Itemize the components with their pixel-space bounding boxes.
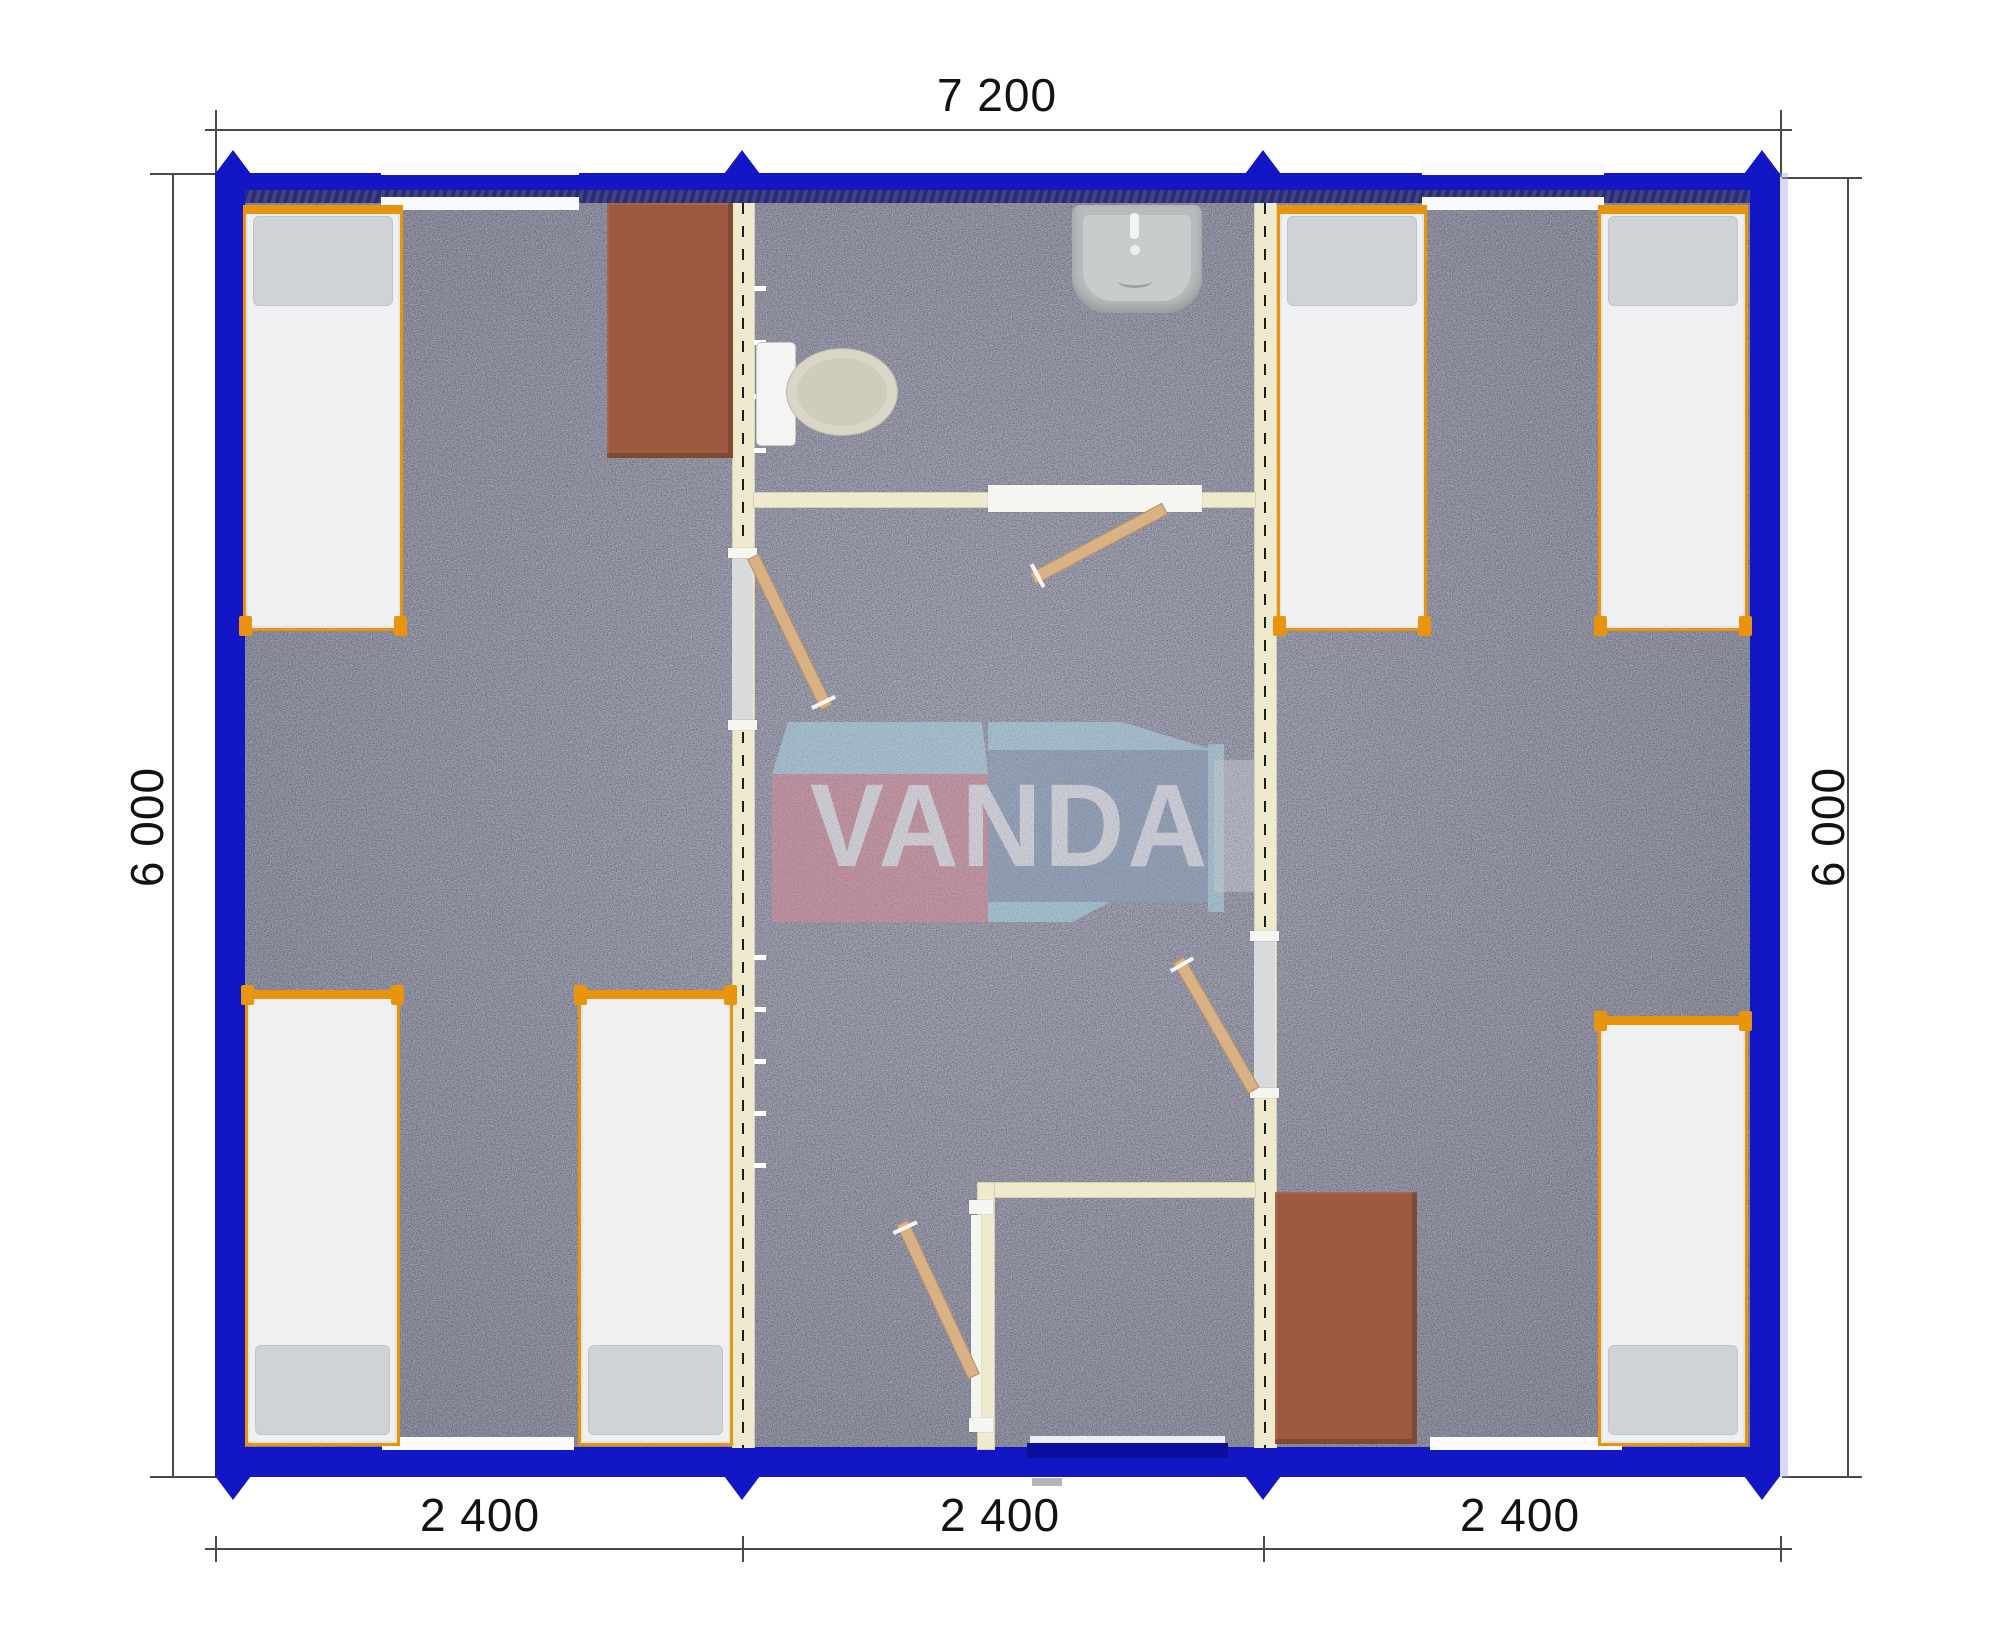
bed-corner-knob (1418, 616, 1431, 636)
bed-pillow (1608, 216, 1738, 306)
dim-left-tick-bottom (150, 1476, 216, 1478)
sink (1072, 205, 1202, 313)
entry-door (1027, 1443, 1228, 1458)
dim-bottom-tick-3 (1263, 1536, 1265, 1562)
bed-corner-knob (394, 616, 407, 636)
joint-arrow-bottom-1 (215, 1476, 251, 1500)
faucet-icon (1130, 213, 1139, 239)
dim-left-label: 6 000 (120, 727, 174, 927)
faucet-knob (1130, 245, 1140, 255)
bed-pillow (1287, 216, 1417, 306)
dim-bottom-label-1: 2 400 (380, 1488, 580, 1542)
bathroom-sliding-door (988, 485, 1202, 512)
entry-step (1032, 1478, 1062, 1486)
vestibule-jamb-bottom (969, 1418, 993, 1432)
dim-bottom-tick-1 (215, 1536, 217, 1562)
bed-frame-bar (1598, 1016, 1748, 1025)
dim-right-label: 6 000 (1801, 727, 1855, 927)
bed (1598, 1016, 1748, 1446)
wall-hook-1 (754, 286, 766, 291)
bed (1277, 205, 1427, 631)
dim-bottom-tick-4 (1780, 1536, 1782, 1562)
floor-plan: 7 200 6 000 6 000 2 400 2 400 2 400 (0, 0, 2000, 1648)
doorjamb-right-top (1250, 931, 1279, 941)
bed-corner-knob (724, 985, 737, 1005)
bed-frame-bar (1598, 205, 1748, 214)
bed-corner-knob (1739, 616, 1752, 636)
bed (578, 990, 733, 1446)
joint-arrow-top-4 (1744, 150, 1780, 174)
outer-wall-right-highlight (1780, 173, 1788, 1477)
bed-frame-bar (1277, 205, 1427, 214)
joint-arrow-top-3 (1245, 150, 1281, 174)
bed-frame-bar (245, 990, 400, 999)
toilet-bowl (786, 348, 898, 436)
bed (243, 205, 403, 631)
doorway-left-wall (732, 556, 753, 722)
joint-arrow-top-2 (724, 150, 760, 174)
doorjamb-left-bottom (728, 720, 757, 730)
wall-hook-7 (754, 1059, 766, 1064)
module-wall-left-centerline (742, 203, 744, 1448)
wall-hook-5 (754, 955, 766, 960)
bed (245, 990, 400, 1446)
bed-pillow (253, 216, 393, 306)
desk (607, 203, 733, 458)
window-top-right-sill (1422, 197, 1604, 210)
bed-corner-knob (239, 616, 252, 636)
dim-bottom-label-2: 2 400 (900, 1488, 1100, 1542)
bed (1598, 205, 1748, 631)
dim-right-tick-top (1782, 177, 1862, 179)
module-wall-left (732, 203, 755, 1448)
wall-hook-6 (754, 1007, 766, 1012)
logo-text: VANDA (784, 758, 1235, 894)
window-top-left-outer (381, 163, 579, 175)
window-bottom-right-sill (1430, 1437, 1622, 1450)
vanda-watermark: VANDA (770, 716, 1264, 928)
bed-pillow (588, 1345, 723, 1435)
bed-corner-knob (241, 985, 254, 1005)
wall-hook-4 (754, 448, 766, 453)
dim-right-tick-bottom (1782, 1476, 1862, 1478)
desk (1275, 1192, 1417, 1444)
sink-drain (1118, 275, 1152, 288)
dim-bottom-tick-2 (742, 1536, 744, 1562)
wall-hook-9 (754, 1163, 766, 1168)
window-top-right-outer (1422, 163, 1604, 175)
bed-corner-knob (574, 985, 587, 1005)
bed-frame-bar (243, 205, 403, 214)
dim-left-tick-top (150, 173, 216, 175)
joint-arrow-top-1 (215, 150, 251, 174)
dim-top-line (205, 129, 1792, 131)
window-bottom-left-sill (382, 1437, 574, 1450)
joint-arrow-bottom-3 (1245, 1476, 1281, 1500)
dim-top-label: 7 200 (897, 68, 1097, 122)
vestibule-jamb-top (969, 1200, 993, 1214)
doorway-right-wall (1254, 939, 1275, 1090)
bed-corner-knob (1739, 1011, 1752, 1031)
bed-corner-knob (391, 985, 404, 1005)
dim-bottom-label-3: 2 400 (1420, 1488, 1620, 1542)
wall-hook-8 (754, 1111, 766, 1116)
bed-pillow (255, 1345, 390, 1435)
module-wall-right (1254, 203, 1277, 1448)
module-wall-right-centerline (1264, 203, 1266, 1448)
vestibule-wall-horizontal (977, 1182, 1256, 1198)
bed-corner-knob (1594, 1011, 1607, 1031)
bed-corner-knob (1273, 616, 1286, 636)
dim-bottom-line (205, 1548, 1792, 1550)
toilet-seat (797, 358, 887, 426)
bed-frame-bar (578, 990, 733, 999)
joint-arrow-bottom-2 (724, 1476, 760, 1500)
bed-corner-knob (1594, 616, 1607, 636)
vestibule-door-panel (971, 1215, 981, 1428)
window-top-left-sill (381, 197, 579, 210)
dim-top-ext-right (1780, 110, 1782, 177)
bed-pillow (1608, 1345, 1738, 1435)
joint-arrow-bottom-4 (1744, 1476, 1780, 1500)
